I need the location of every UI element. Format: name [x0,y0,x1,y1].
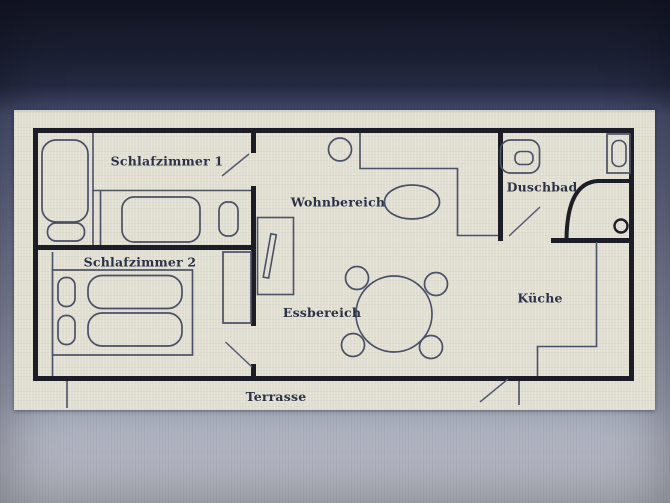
floor-plan-drawing: Schlafzimmer 1 Schlafzimmer 2 Wohnbereic… [0,0,670,503]
pillow [219,202,238,236]
chair [420,336,443,359]
mattress [122,197,200,242]
room-schlafzimmer2 [53,252,252,376]
door-swing-terrasse [480,379,508,402]
chair [342,334,365,357]
label-kueche: Küche [517,291,562,306]
coffee-table [385,185,440,219]
shower-drain [615,220,628,233]
kitchen-counter-line [538,242,597,376]
wardrobe [223,252,251,323]
label-wohnbereich: Wohnbereich [290,195,385,210]
room-kueche [538,242,597,376]
bed-bench [48,223,85,241]
toilet-lid [515,152,533,165]
pillow [58,278,75,307]
door-swing-schlafzimmer1 [222,154,249,176]
chair [346,267,369,290]
label-schlafzimmer2: Schlafzimmer 2 [84,255,197,270]
sink-basin [612,141,626,167]
pillow [58,316,75,345]
tv-screen [263,234,276,278]
chair [425,273,448,296]
label-terrasse: Terrasse [246,389,307,404]
mattress [88,276,182,309]
door-swing-schlafzimmer2 [226,342,253,367]
area-divider-step-line [360,133,498,236]
label-schlafzimmer1: Schlafzimmer 1 [111,154,224,169]
room-schlafzimmer1 [42,133,251,245]
room-wohnbereich [258,133,499,295]
photographed-screen: Schlafzimmer 1 Schlafzimmer 2 Wohnbereic… [0,0,670,503]
side-table [329,138,352,161]
label-essbereich: Essbereich [283,305,361,320]
label-duschbad: Duschbad [507,180,578,195]
single-bed [42,140,88,222]
mattress [88,313,182,346]
door-swing-duschbad [509,207,540,236]
tv-cabinet [258,218,294,295]
